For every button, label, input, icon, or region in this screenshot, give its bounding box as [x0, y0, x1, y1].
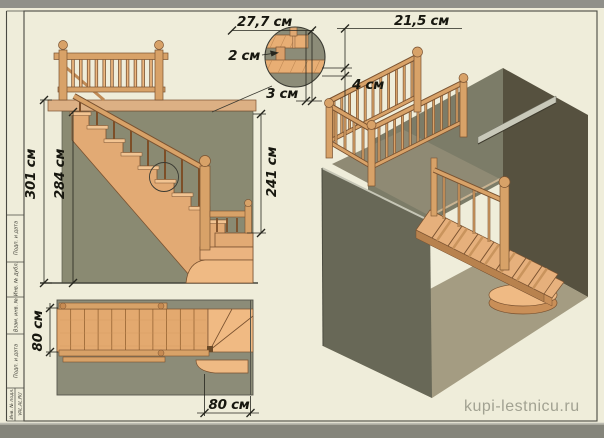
titleblock-label-2: Инв. № дубл.	[14, 262, 20, 296]
titleblock-label-4: Подп. и дата	[14, 344, 20, 378]
front-newel-ball	[200, 156, 211, 167]
dim-2: 2 см	[228, 48, 260, 64]
bottom-gray-bar	[0, 425, 604, 438]
plan-flight	[57, 309, 208, 352]
top-gray-bar	[0, 0, 604, 8]
dim-4: 4 см	[351, 77, 384, 93]
dim-284: 284 см	[52, 149, 68, 199]
dim-301: 301 см	[23, 149, 39, 199]
titleblock-label-5: Инв. № подл.	[9, 388, 15, 419]
titleblock-brand: VAL.AL.RU	[18, 392, 24, 416]
front-newel-post	[200, 166, 210, 250]
dim-plan-80-left: 80 см	[30, 310, 46, 351]
plan-railing-bottom	[59, 350, 209, 356]
titleblock-label-3: Взам. инв. №	[14, 298, 20, 332]
plan-winder	[208, 309, 253, 352]
plan-railing-top	[59, 303, 167, 309]
stair-drawing: Подп. и дата Инв. № дубл. Взам. инв. № П…	[0, 0, 604, 438]
watermark: kupi-lestnicu.ru	[464, 398, 580, 415]
drawing-sheet: Подп. и дата Инв. № дубл. Взам. инв. № П…	[0, 0, 604, 438]
dim-21-5: 21,5 см	[394, 13, 449, 29]
dim-plan-80-bottom: 80 см	[208, 397, 249, 413]
front-lower-rail	[210, 211, 248, 217]
titleblock-label-1: Подп. и дата	[14, 221, 20, 255]
dim-241: 241 см	[264, 147, 280, 197]
dim-27-7: 27,7 см	[237, 14, 292, 30]
dim-3: 3 см	[266, 86, 298, 102]
